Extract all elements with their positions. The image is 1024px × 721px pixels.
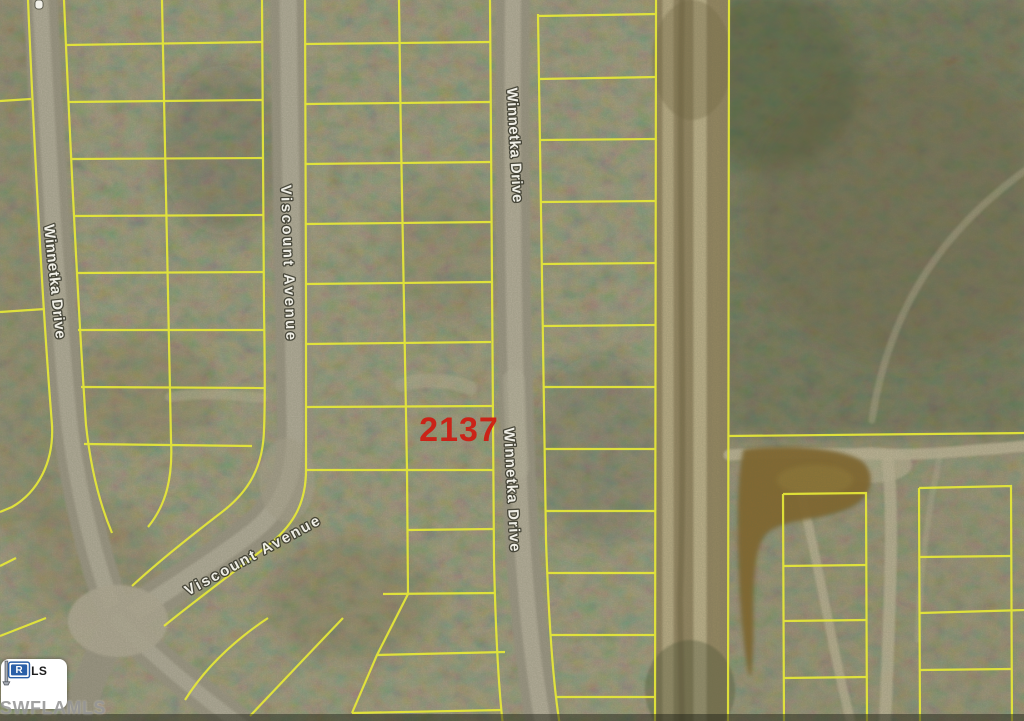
parcel-number: 2137 bbox=[419, 411, 499, 449]
mls-flag-icon: R bbox=[1, 659, 33, 686]
satellite-map: Winnetka Drive Viscount Avenue Winnetka … bbox=[0, 0, 1024, 721]
bottom-edge-shadow bbox=[0, 714, 1024, 721]
mls-org-watermark: SWFLAMLS bbox=[0, 698, 106, 719]
mls-listing-photo: Winnetka Drive Viscount Avenue Winnetka … bbox=[0, 0, 1024, 721]
mls-flag-letter: R bbox=[16, 665, 23, 676]
clipped-label-fragment bbox=[35, 0, 43, 9]
